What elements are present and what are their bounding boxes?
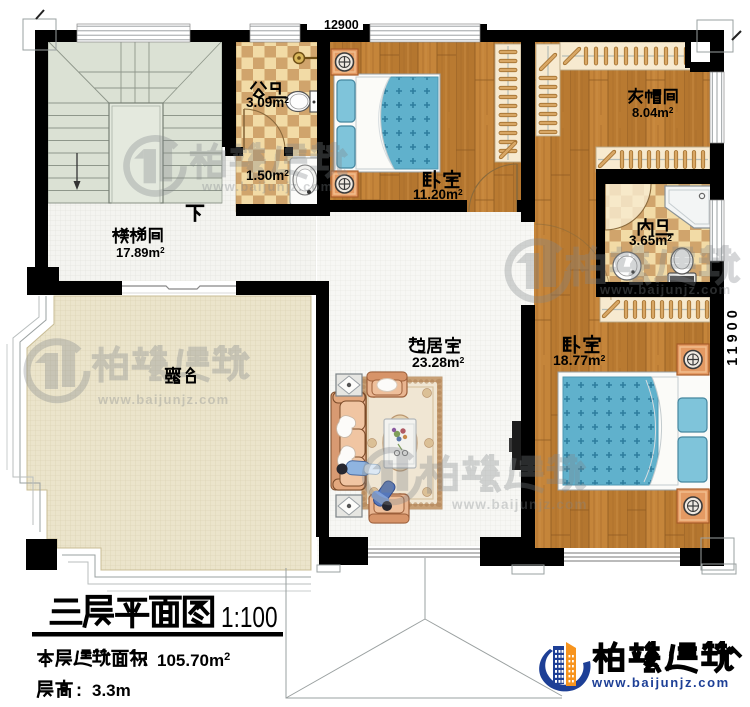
svg-text:18.77m2: 18.77m2 — [553, 352, 605, 368]
svg-text:www.baijunjz.com: www.baijunjz.com — [599, 282, 731, 297]
svg-text::: : — [76, 680, 82, 700]
svg-text:11900: 11900 — [725, 306, 741, 366]
svg-text:1:100: 1:100 — [221, 600, 278, 633]
svg-text:www.baijunjz.com: www.baijunjz.com — [97, 392, 229, 407]
svg-text:www.baijunjz.com: www.baijunjz.com — [591, 675, 730, 690]
svg-text:23.28m2: 23.28m2 — [412, 354, 464, 370]
svg-text:3.65m2: 3.65m2 — [629, 233, 672, 248]
svg-text:12900: 12900 — [324, 18, 359, 32]
svg-text::: : — [142, 650, 148, 670]
svg-text:3.3m: 3.3m — [92, 681, 131, 700]
svg-text:www.baijunjz.com: www.baijunjz.com — [451, 497, 588, 512]
svg-text:17.89m2: 17.89m2 — [116, 245, 165, 260]
svg-text:105.70m2: 105.70m2 — [157, 651, 230, 670]
svg-text:3.09m2: 3.09m2 — [246, 95, 289, 110]
svg-text:11.20m2: 11.20m2 — [413, 187, 463, 202]
svg-text:1.50m2: 1.50m2 — [246, 168, 289, 183]
svg-text:8.04m2: 8.04m2 — [632, 105, 674, 120]
